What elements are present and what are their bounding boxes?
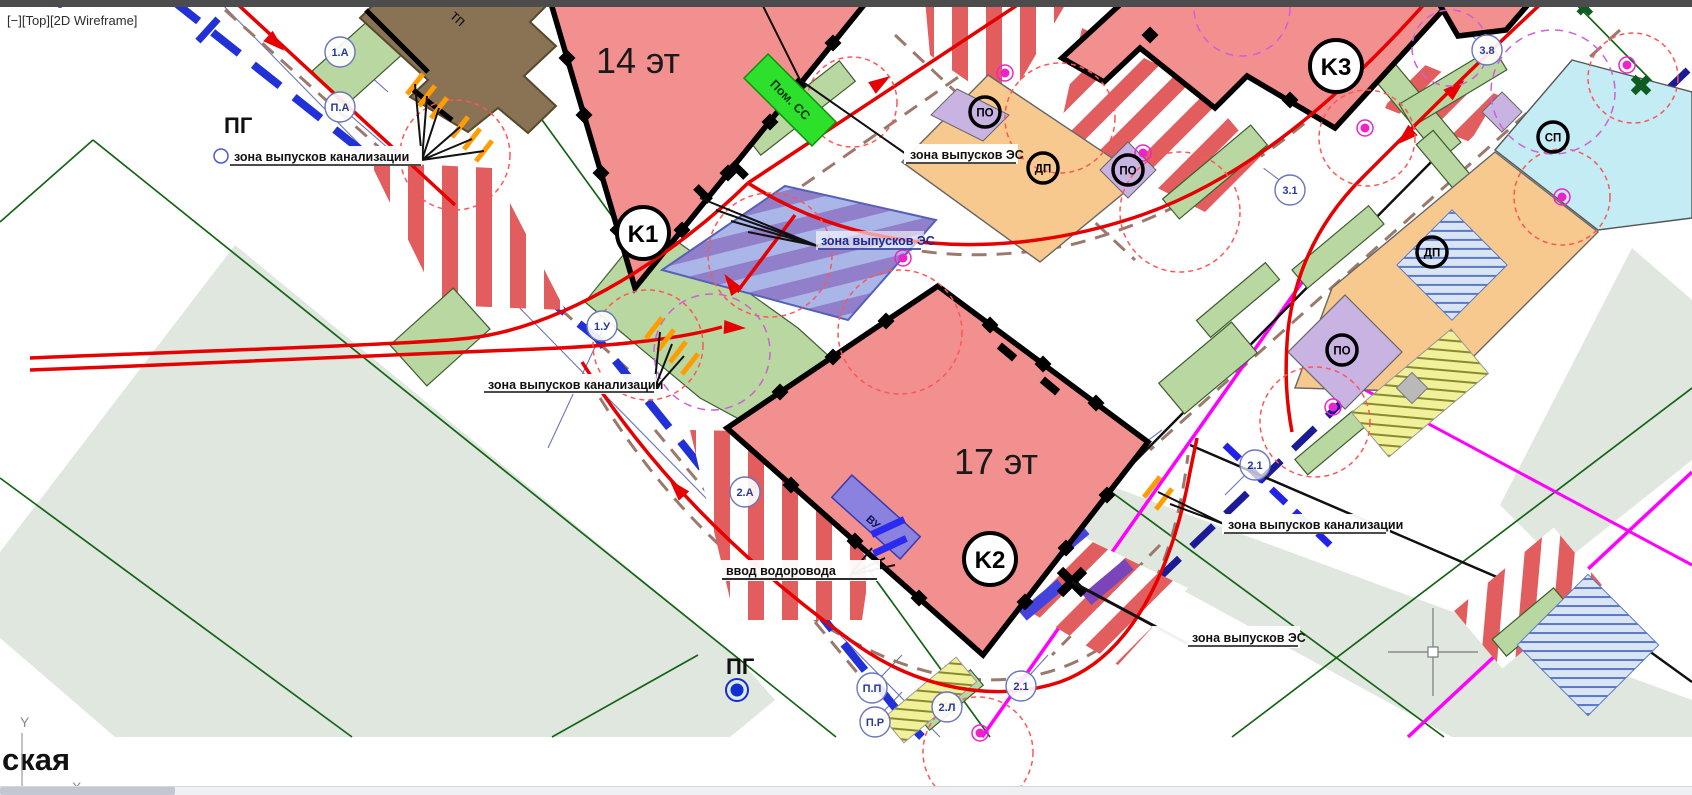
node-1u: 1.У: [587, 311, 617, 341]
horizontal-scrollbar-thumb[interactable]: [0, 787, 175, 795]
viewport-minimize-control[interactable]: [−]: [7, 13, 22, 28]
building-mark-k1: K1: [617, 207, 669, 259]
svg-text:зона выпусков ЭС: зона выпусков ЭС: [821, 234, 935, 248]
fire-hydrant-label-1: ПГ: [224, 113, 253, 138]
svg-text:ПО: ПО: [976, 108, 993, 120]
svg-text:2.Л: 2.Л: [939, 702, 956, 714]
node-pp: П.П: [857, 673, 887, 703]
fire-hydrant-label-2: ПГ: [726, 654, 755, 679]
node-1a: 1.А: [325, 37, 355, 67]
svg-text:3.1: 3.1: [1282, 185, 1297, 197]
svg-text:K3: K3: [1321, 54, 1352, 81]
viewport-controls: [−][Top][2D Wireframe]: [7, 13, 137, 28]
svg-text:П.А: П.А: [331, 102, 350, 114]
label-sewer-zone-2: зона выпусков канализации: [482, 374, 663, 394]
node-2a: 2.А: [730, 477, 760, 507]
drawing-canvas[interactable]: тп: [0, 0, 1692, 795]
svg-text:зона выпусков канализации: зона выпусков канализации: [234, 150, 409, 164]
node-38: 3.8: [1472, 35, 1502, 65]
building-k1-floors: 14 эт: [596, 40, 680, 81]
svg-text:K2: K2: [975, 547, 1006, 574]
svg-text:ПО: ПО: [1119, 166, 1136, 178]
node-pa: П.А: [325, 92, 355, 122]
node-pr: П.Р: [860, 707, 890, 737]
svg-text:3.8: 3.8: [1479, 45, 1494, 57]
node-31: 3.1: [1275, 175, 1305, 205]
svg-text:1.У: 1.У: [594, 321, 610, 333]
svg-text:ПО: ПО: [1333, 346, 1350, 358]
node-2l: 2.Л: [932, 692, 962, 722]
building-k2-floors: 17 эт: [954, 441, 1038, 482]
svg-text:1.А: 1.А: [331, 47, 348, 59]
node-21-east: 2.1: [1240, 450, 1270, 480]
label-water-inlet: ввод водоровода: [718, 560, 880, 581]
horizontal-scrollbar[interactable]: [0, 786, 1692, 795]
label-es-zone-1: зона выпусков ЭС: [904, 144, 1024, 164]
svg-text:2.1: 2.1: [1247, 460, 1262, 472]
svg-text:2.1: 2.1: [1013, 681, 1028, 693]
svg-text:зона выпусков канализации: зона выпусков канализации: [488, 378, 663, 392]
svg-text:Y: Y: [20, 714, 30, 730]
label-es-zone-2: зона выпусков ЭС: [816, 231, 935, 250]
viewport-visual-style-control[interactable]: [2D Wireframe]: [50, 13, 137, 28]
label-es-zone-3: зона выпусков ЭС: [1152, 626, 1306, 648]
svg-text:П.П: П.П: [863, 683, 882, 695]
svg-text:ДП: ДП: [1424, 248, 1440, 260]
viewport-view-control[interactable]: [Top]: [22, 13, 50, 28]
label-sewer-zone-1: зона выпусков канализации: [228, 146, 422, 166]
node-21-south: 2.1: [1006, 671, 1036, 701]
ribbon-bottom-edge: [0, 0, 1692, 7]
svg-text:K1: K1: [628, 221, 659, 248]
svg-text:зона выпусков ЭС: зона выпусков ЭС: [1192, 631, 1306, 645]
svg-text:ДП: ДП: [1035, 164, 1051, 176]
svg-text:зона выпусков канализации: зона выпусков канализации: [1228, 518, 1403, 532]
building-mark-k3: K3: [1310, 40, 1362, 92]
svg-text:СП: СП: [1545, 133, 1562, 145]
street-name-fragment: ская: [2, 742, 70, 777]
building-mark-k2: K2: [964, 533, 1016, 585]
svg-text:зона выпусков ЭС: зона выпусков ЭС: [910, 148, 1024, 162]
svg-text:ввод водоровода: ввод водоровода: [726, 564, 837, 578]
svg-text:П.Р: П.Р: [866, 717, 884, 729]
cad-application-window: тп: [0, 0, 1692, 795]
svg-text:2.А: 2.А: [736, 487, 753, 499]
label-sewer-zone-3: зона выпусков канализации: [1222, 514, 1403, 534]
